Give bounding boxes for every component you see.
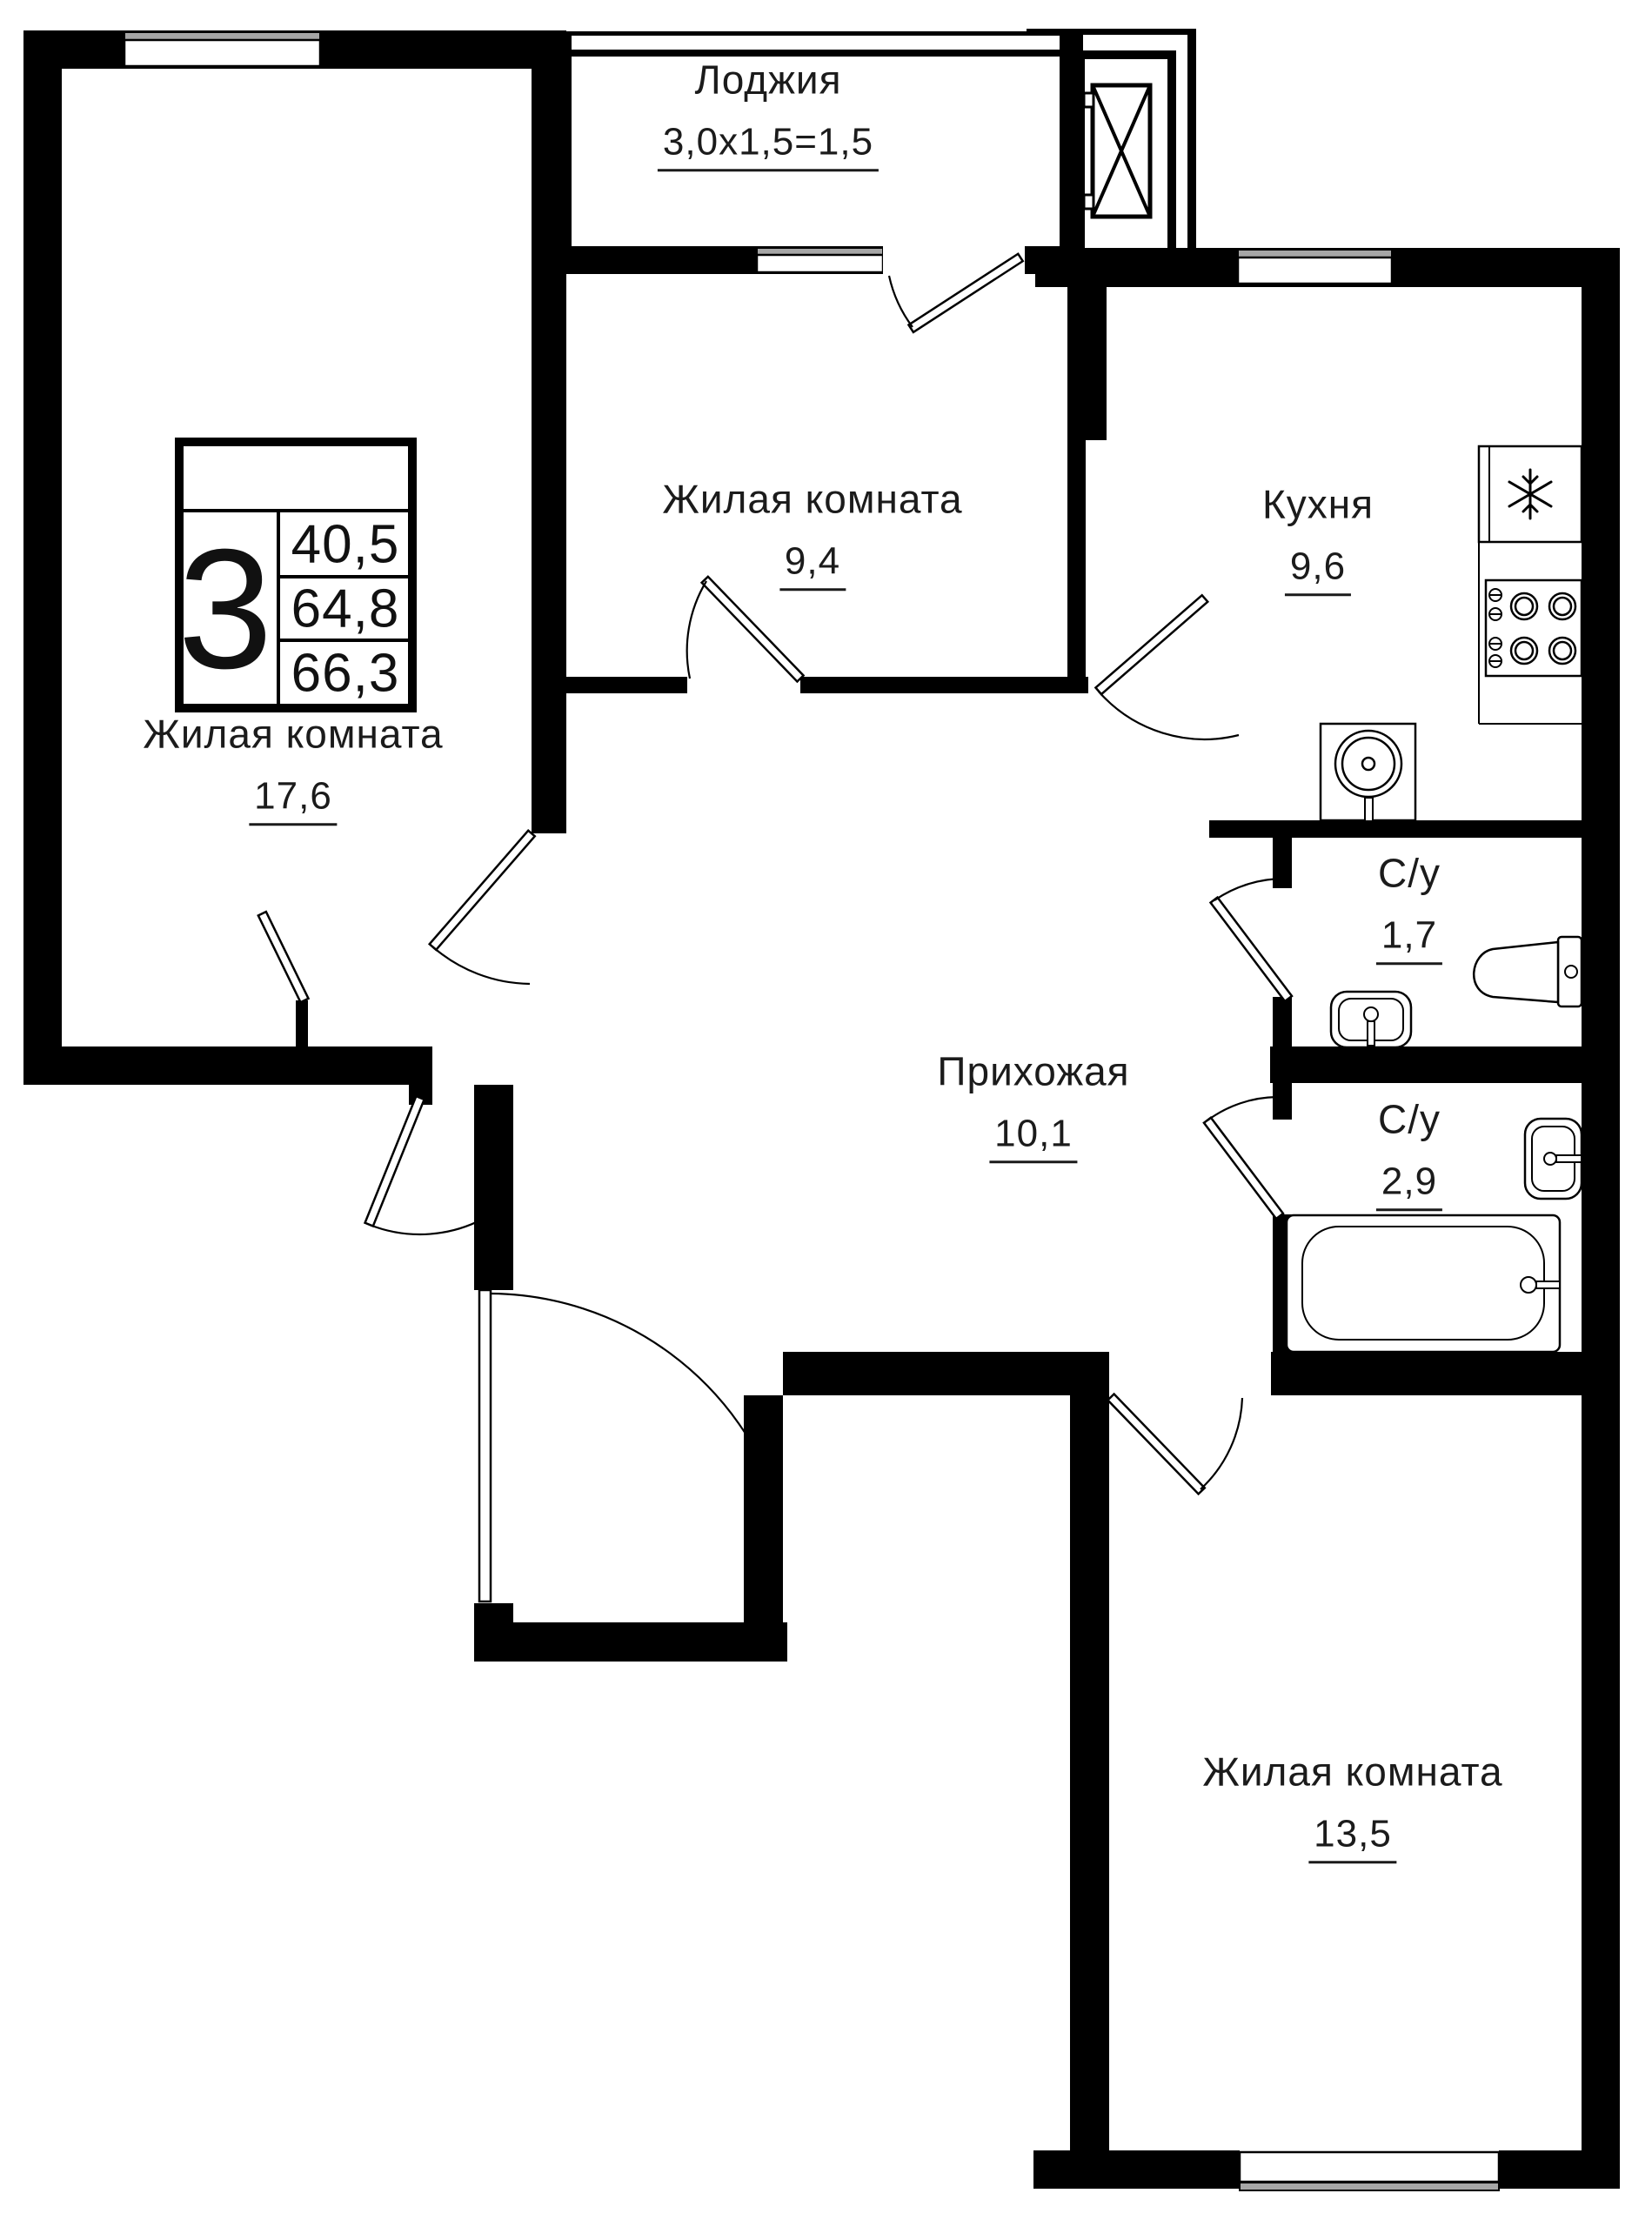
room-area: 2,9 [1376, 1157, 1442, 1211]
door-bath-large [1204, 1097, 1283, 1219]
room-label-kitchen: Кухня 9,6 [1262, 479, 1374, 596]
door-balcony [883, 246, 1025, 332]
door-living-small [687, 577, 804, 682]
legend-total-area: 66,3 [291, 643, 400, 705]
room-label-loggia: Лоджия 3,0x1,5=1,5 [658, 55, 879, 171]
room-label-bath-small: С/у 1,7 [1376, 848, 1442, 965]
door-entry [479, 1290, 780, 1601]
crossed-box-icon [1084, 85, 1150, 217]
windows [124, 32, 1499, 2190]
toilet-icon [1474, 937, 1582, 1006]
elevator-shaft [1027, 29, 1196, 248]
room-label-living-bottom: Жилая комната 13,5 [1202, 1747, 1502, 1863]
room-name: Прихожая [937, 1046, 1129, 1097]
door-living-large [258, 831, 535, 1002]
kitchen-sink [1321, 724, 1415, 821]
door-living-bottom [1107, 1394, 1242, 1494]
window-top-left [124, 32, 320, 66]
fridge [1479, 446, 1582, 542]
door-lobe [365, 1096, 488, 1234]
room-name: С/у [1376, 848, 1442, 899]
floor-plan: Лоджия 3,0x1,5=1,5 Жилая комната 9,4 Кух… [0, 0, 1652, 2220]
room-label-hallway: Прихожая 10,1 [937, 1046, 1129, 1163]
room-area: 9,4 [779, 537, 846, 591]
door-kitchen [1095, 595, 1239, 739]
window-kitchen [1238, 250, 1392, 284]
room-label-bath-large: С/у 2,9 [1376, 1094, 1442, 1211]
small-sink [1331, 992, 1411, 1047]
legend-area-without-loggia: 64,8 [291, 578, 400, 640]
window-bottom [1240, 2152, 1499, 2190]
bathtub-icon [1287, 1215, 1560, 1352]
room-area: 9,6 [1285, 542, 1351, 596]
room-name: Жилая комната [143, 709, 443, 759]
room-name: Жилая комната [1202, 1747, 1502, 1797]
room-label-living-large: Жилая комната 17,6 [143, 709, 443, 826]
room-area: 3,0x1,5=1,5 [658, 117, 879, 171]
legend-living-area: 40,5 [291, 514, 400, 576]
stove [1486, 580, 1582, 676]
room-label-living-small: Жилая комната 9,4 [662, 474, 962, 591]
door-bath-small [1211, 879, 1292, 1001]
room-area: 13,5 [1308, 1809, 1397, 1863]
oval-basin-icon [1525, 1119, 1582, 1199]
window-loggia [757, 248, 883, 272]
room-area: 17,6 [249, 772, 338, 826]
room-name: С/у [1376, 1094, 1442, 1145]
room-name: Кухня [1262, 479, 1374, 530]
room-area: 10,1 [989, 1109, 1078, 1163]
legend-rooms-count: 3 [177, 512, 272, 707]
room-area: 1,7 [1376, 911, 1442, 965]
room-name: Лоджия [658, 55, 879, 105]
room-name: Жилая комната [662, 474, 962, 525]
